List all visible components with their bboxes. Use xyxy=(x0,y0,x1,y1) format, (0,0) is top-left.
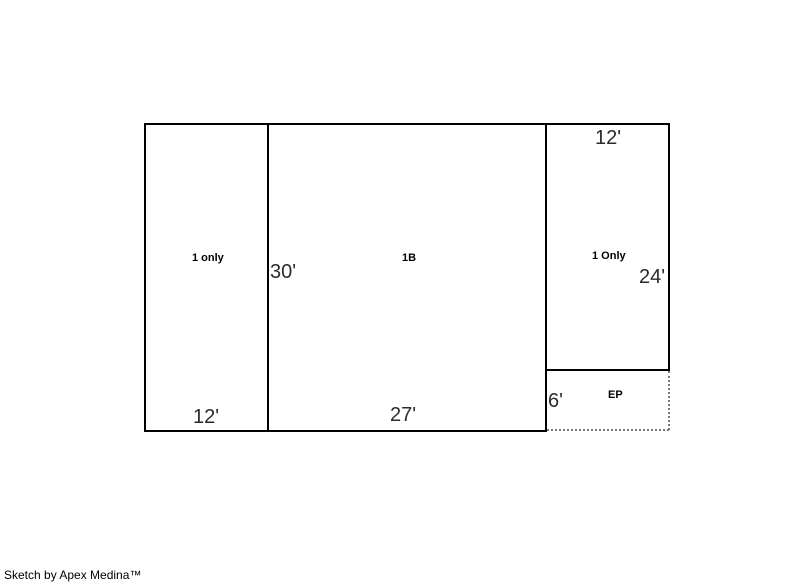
wall-divider-left-middle xyxy=(267,123,269,432)
middle-room-width-dimension: 27' xyxy=(390,405,416,425)
middle-room-label: 1B xyxy=(402,252,416,265)
sketch-credit-text: Sketch by Apex Medina™ xyxy=(4,568,141,582)
right-room-width-dimension: 12' xyxy=(595,128,621,148)
wall-porch-right-dotted xyxy=(668,371,670,430)
wall-divider-middle-right xyxy=(545,123,547,432)
porch-height-dimension: 6' xyxy=(548,391,563,411)
middle-room-height-dimension: 30' xyxy=(270,262,296,282)
wall-porch-bottom-dotted xyxy=(547,429,669,431)
right-room-label: 1 Only xyxy=(592,250,626,263)
left-room-width-dimension: 12' xyxy=(193,407,219,427)
wall-right xyxy=(668,123,670,371)
wall-bottom xyxy=(144,430,547,432)
wall-top xyxy=(144,123,670,125)
wall-left xyxy=(144,123,146,432)
left-room-label: 1 only xyxy=(192,252,224,265)
right-room-height-dimension: 24' xyxy=(639,267,665,287)
wall-porch-top xyxy=(545,369,670,371)
sketch-canvas: 1 only 1B 1 Only EP 12' 30' 24' 6' 12' 2… xyxy=(0,0,800,587)
porch-room-label: EP xyxy=(608,389,623,402)
